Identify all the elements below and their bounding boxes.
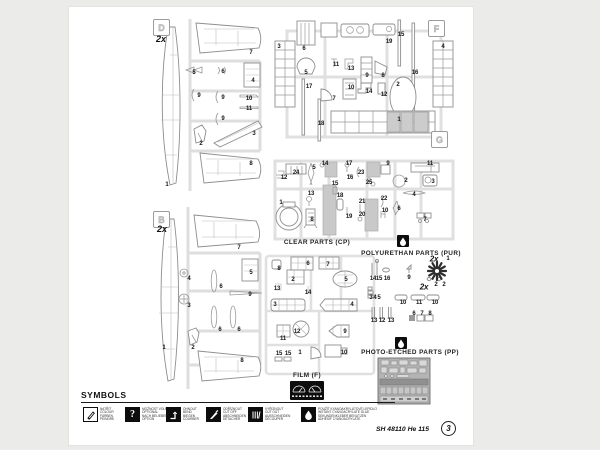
symbols-rule — [81, 402, 395, 403]
sheet-number: 3 — [446, 424, 450, 433]
saw-icon — [248, 407, 263, 422]
resin-drop-icon — [397, 235, 409, 247]
symbol-paint: NATŘÍTCOLOURFÄRBENPEINDRE — [83, 407, 114, 422]
film-heading: FILM (F) — [293, 372, 321, 379]
symbols-heading: SYMBOLS — [81, 390, 127, 400]
polyurethan-parts-heading: POLYURETHAN PARTS (PUR) — [361, 250, 461, 257]
sprue-d-multiplier: 2x — [156, 34, 166, 44]
kit-code: SH 48110 He 115 — [376, 426, 429, 433]
photo-etched-parts-heading: PHOTO-ETCHED PARTS (PP) — [361, 349, 459, 356]
clear-parts-heading: CLEAR PARTS (CP) — [284, 239, 350, 246]
sprue-b-multiplier: 2x — [157, 224, 167, 234]
symbol-cut-out: VYŘÍZNOUTCUT OUTAUSSCHNEIDENDÉCOUPER — [248, 407, 290, 422]
paint-brush-icon — [83, 407, 98, 422]
glue-drop-icon — [301, 407, 316, 422]
question-mark-icon: ? — [125, 407, 140, 422]
clear-parts-drawing — [263, 253, 377, 377]
bend-icon — [166, 407, 181, 422]
knife-icon — [206, 407, 221, 422]
symbol-cut-off: ODŘÍZNOUTCUT OFFABSCHNEIDENDÉTACHER — [206, 407, 246, 422]
photo-etched-fret — [377, 357, 431, 405]
sprue-g-badge: G — [431, 131, 448, 148]
symbol-cyanoacrylate-glue: POUŽÍT KYANOAKRYLÁTOVÉ LEPIDLOINSTANT CY… — [301, 407, 377, 422]
scan-background: D 2x F G B 2x CLEAR PARTS (CP) POLYURETH… — [0, 0, 600, 450]
film-strip — [290, 381, 324, 400]
symbol-optional: ? MOŽNOST VOLBYOPTIONALNACH BELIEBENOPTI… — [125, 407, 169, 422]
polyurethan-parts-drawing — [365, 257, 461, 341]
sprue-g-drawing — [273, 159, 457, 243]
sprue-f-badge: F — [428, 20, 445, 37]
instruction-sheet-page: D 2x F G B 2x CLEAR PARTS (CP) POLYURETH… — [68, 6, 474, 446]
sheet-number-badge: 3 — [441, 421, 456, 436]
symbol-bend: OHNOUTBENDBIEGENCOURBER — [166, 407, 199, 422]
photoetch-drop-icon — [395, 337, 407, 349]
